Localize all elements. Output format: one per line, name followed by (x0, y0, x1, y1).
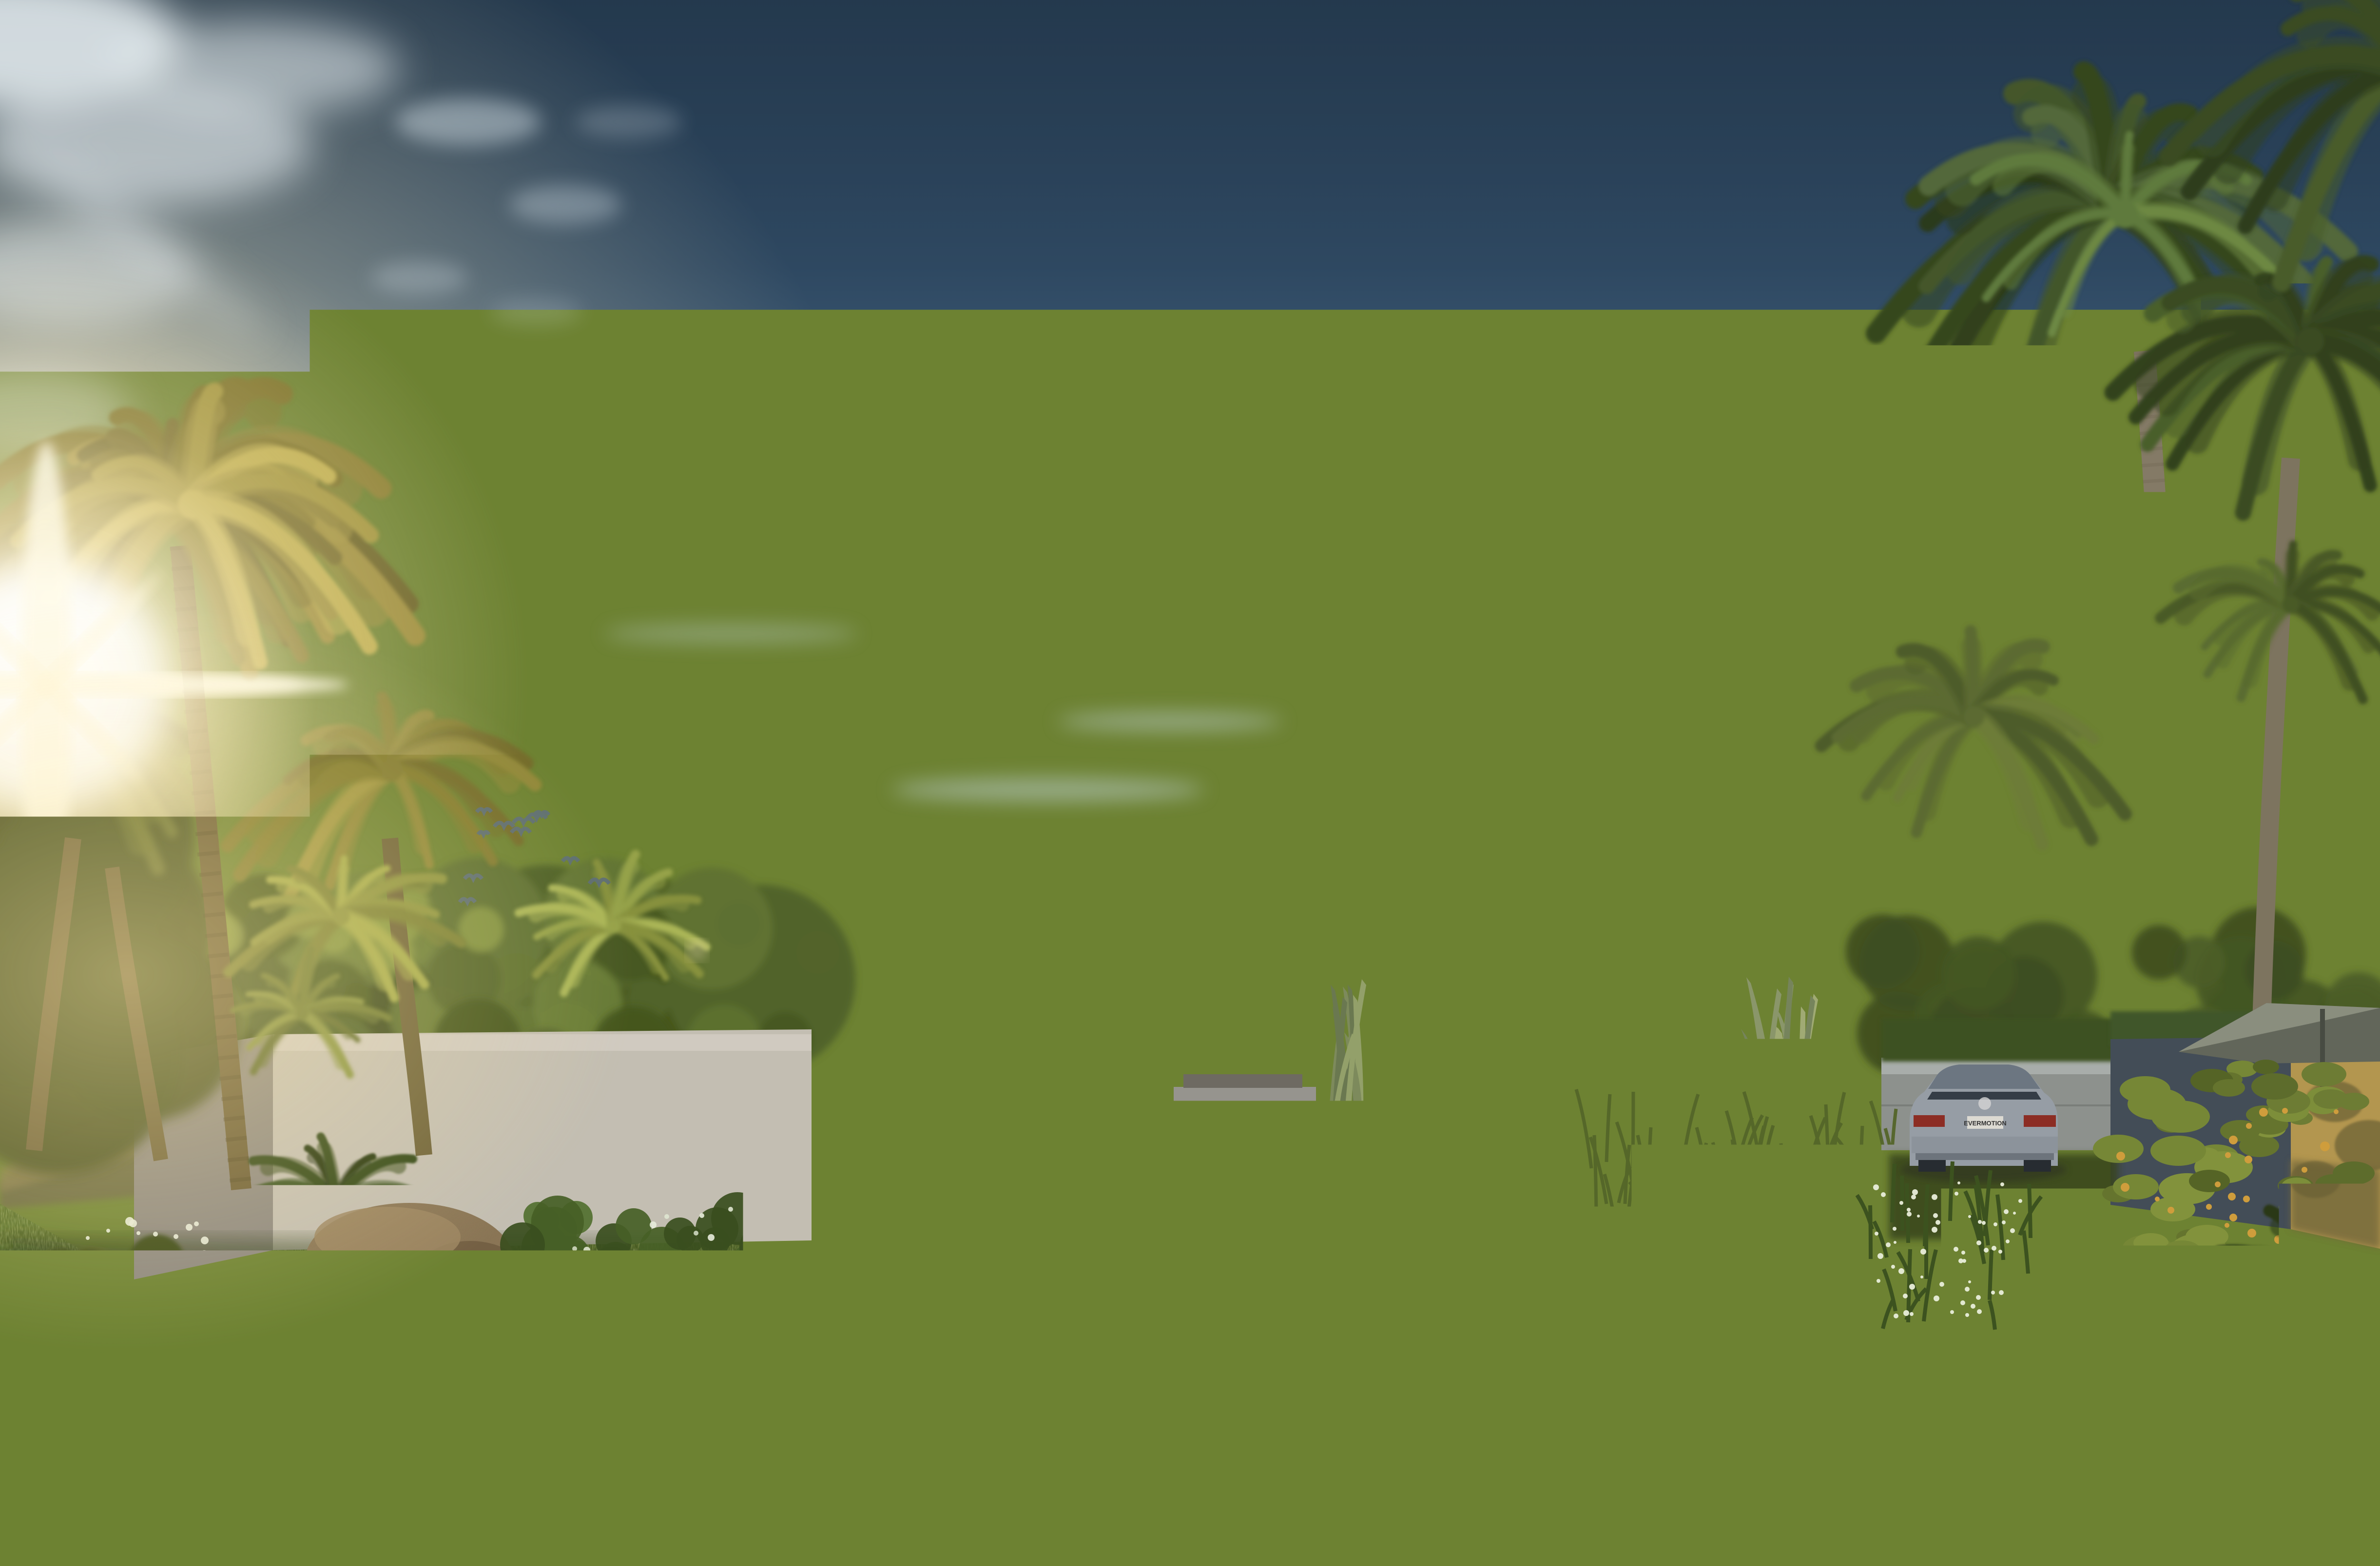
svg-text:EVERMOTION: EVERMOTION (1964, 1120, 2006, 1127)
